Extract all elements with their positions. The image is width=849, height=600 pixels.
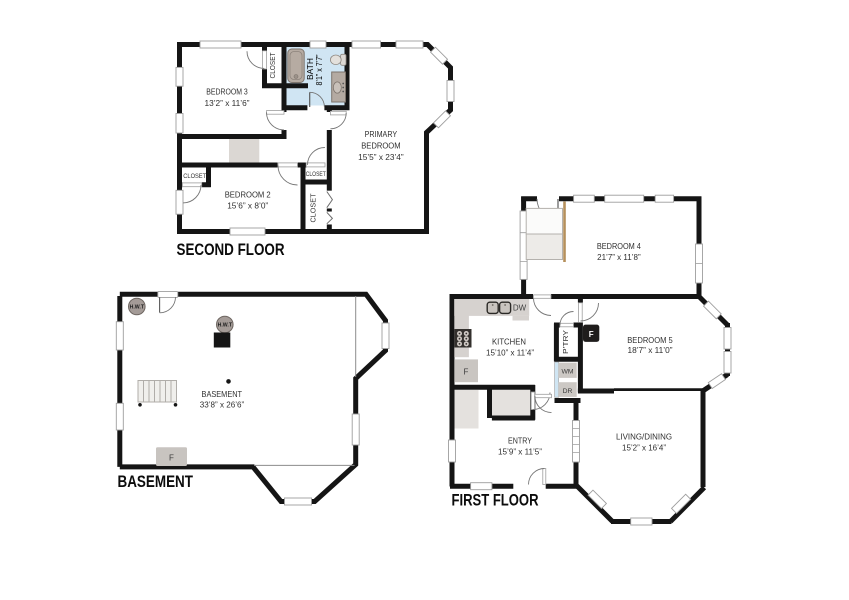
svg-text:PRIMARY: PRIMARY (365, 129, 398, 139)
svg-text:CLOSET: CLOSET (268, 52, 277, 78)
svg-text:15’9” x 11’5”: 15’9” x 11’5” (498, 447, 542, 457)
svg-text:18’7” x 11’0”: 18’7” x 11’0” (628, 345, 673, 355)
svg-text:BATH: BATH (306, 58, 315, 80)
svg-text:F: F (169, 453, 174, 462)
svg-text:BEDROOM 2: BEDROOM 2 (225, 189, 271, 199)
svg-text:BEDROOM 4: BEDROOM 4 (597, 241, 641, 251)
svg-text:FIRST FLOOR: FIRST FLOOR (452, 492, 539, 510)
svg-text:KITCHEN: KITCHEN (492, 336, 526, 346)
svg-text:BEDROOM 3: BEDROOM 3 (206, 87, 248, 97)
svg-text:DR: DR (563, 388, 573, 395)
svg-text:ENTRY: ENTRY (508, 436, 532, 446)
svg-text:33’8” x 26’6”: 33’8” x 26’6” (200, 400, 245, 410)
svg-text:15’5” x 23’4”: 15’5” x 23’4” (358, 152, 404, 162)
svg-text:21’7” x 11’8”: 21’7” x 11’8” (597, 252, 641, 262)
svg-text:8’1” x 7’7”: 8’1” x 7’7” (315, 54, 324, 85)
svg-text:15’6” x 8’0”: 15’6” x 8’0” (227, 201, 268, 211)
svg-text:BEDROOM 5: BEDROOM 5 (627, 335, 673, 345)
svg-text:BEDROOM: BEDROOM (361, 141, 400, 151)
svg-text:CLOSET: CLOSET (306, 171, 326, 178)
svg-text:BASEMENT: BASEMENT (118, 473, 194, 491)
svg-text:DW: DW (513, 303, 527, 312)
svg-text:LIVING/DINING: LIVING/DINING (616, 432, 672, 442)
svg-text:BASEMENT: BASEMENT (202, 389, 243, 399)
svg-text:15’2” x 16’4”: 15’2” x 16’4” (622, 443, 666, 453)
svg-text:15’10” x 11’4”: 15’10” x 11’4” (486, 347, 534, 357)
svg-text:WM: WM (561, 369, 573, 376)
svg-text:SECOND FLOOR: SECOND FLOOR (177, 241, 285, 259)
svg-text:CLOSET: CLOSET (183, 173, 206, 180)
svg-text:H.W.T: H.W.T (218, 323, 233, 329)
svg-text:H.W.T: H.W.T (130, 305, 145, 311)
svg-text:P’TRY: P’TRY (561, 330, 570, 354)
svg-text:F: F (589, 330, 594, 339)
svg-text:13’2” x 11’6”: 13’2” x 11’6” (205, 98, 250, 108)
svg-text:CLOSET: CLOSET (309, 193, 318, 222)
svg-text:F: F (464, 367, 469, 376)
